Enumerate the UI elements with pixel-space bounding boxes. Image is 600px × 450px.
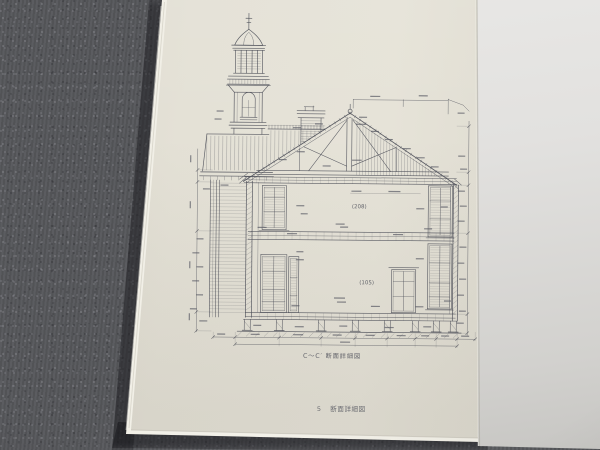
architectural-section-drawing: (208) (105) C〜C′ 断面詳細図 5 断面詳細図 <box>0 0 600 450</box>
room-label-first-floor: (105) <box>359 280 374 286</box>
room-label-second-floor: (208) <box>352 204 367 210</box>
ridge-finial <box>348 109 352 113</box>
fore-edge-line <box>129 2 165 428</box>
page-number: 5 <box>317 405 321 413</box>
tower <box>226 13 271 134</box>
fore-edge-highlight <box>126 6 161 430</box>
page-bottom-edge <box>131 430 478 438</box>
walls-and-floors <box>243 181 458 321</box>
annotation-text-marks <box>189 93 472 344</box>
footer-title: 断面詳細図 <box>330 404 366 413</box>
page-footer: 5 断面詳細図 <box>317 404 366 413</box>
drawing-caption: C〜C′ 断面詳細図 <box>303 351 361 361</box>
left-wing-roof-and-wall <box>198 124 325 318</box>
photo-of-open-book: (208) (105) C〜C′ 断面詳細図 5 断面詳細図 <box>0 0 600 450</box>
